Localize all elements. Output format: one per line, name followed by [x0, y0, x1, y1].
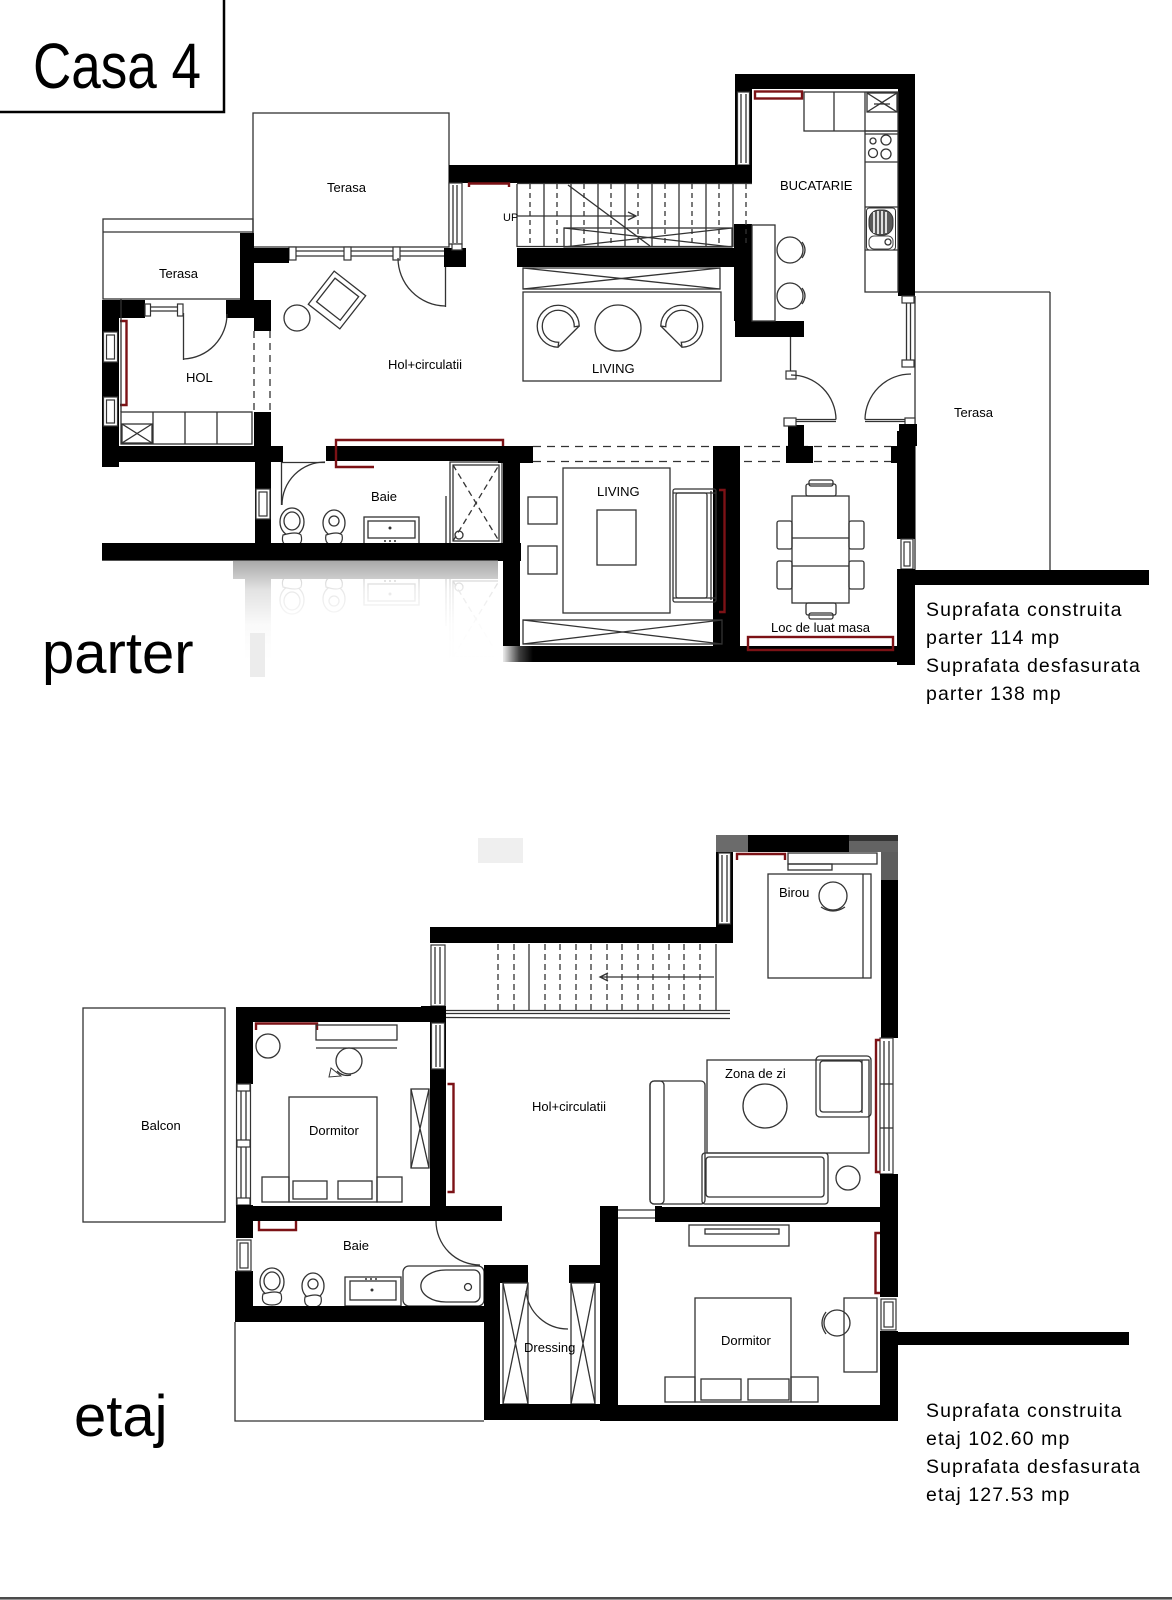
svg-text:HOL: HOL	[186, 370, 213, 385]
svg-text:Birou: Birou	[779, 885, 809, 900]
svg-text:Baie: Baie	[371, 489, 397, 504]
svg-text:etaj 102.60 mp: etaj 102.60 mp	[926, 1428, 1070, 1450]
svg-text:Loc de luat masa: Loc de luat masa	[771, 620, 871, 635]
svg-text:etaj: etaj	[74, 1384, 168, 1449]
svg-text:Suprafata desfasurata: Suprafata desfasurata	[926, 655, 1141, 677]
svg-text:BUCATARIE: BUCATARIE	[780, 178, 853, 193]
svg-text:Dormitor: Dormitor	[309, 1123, 360, 1138]
svg-text:LIVING: LIVING	[597, 484, 640, 499]
svg-text:Hol+circulatii: Hol+circulatii	[388, 357, 462, 372]
svg-text:Balcon: Balcon	[141, 1118, 181, 1133]
svg-text:Suprafata construita: Suprafata construita	[926, 1400, 1123, 1422]
svg-text:Dressing: Dressing	[524, 1340, 575, 1355]
svg-text:Baie: Baie	[343, 1238, 369, 1253]
svg-text:Casa 4: Casa 4	[33, 30, 201, 102]
svg-text:Terasa: Terasa	[954, 405, 994, 420]
svg-text:Terasa: Terasa	[327, 180, 367, 195]
svg-text:LIVING: LIVING	[592, 361, 635, 376]
svg-text:UP: UP	[503, 212, 518, 224]
svg-text:Terasa: Terasa	[159, 266, 199, 281]
svg-text:parter 138 mp: parter 138 mp	[926, 683, 1062, 705]
svg-text:Dormitor: Dormitor	[721, 1333, 772, 1348]
svg-text:Suprafata desfasurata: Suprafata desfasurata	[926, 1456, 1141, 1478]
svg-text:etaj 127.53 mp: etaj 127.53 mp	[926, 1484, 1070, 1506]
svg-text:Hol+circulatii: Hol+circulatii	[532, 1099, 606, 1114]
svg-text:parter: parter	[42, 621, 194, 686]
svg-text:parter 114 mp: parter 114 mp	[926, 627, 1060, 649]
svg-text:Zona de zi: Zona de zi	[725, 1066, 786, 1081]
svg-text:Suprafata construita: Suprafata construita	[926, 599, 1123, 621]
